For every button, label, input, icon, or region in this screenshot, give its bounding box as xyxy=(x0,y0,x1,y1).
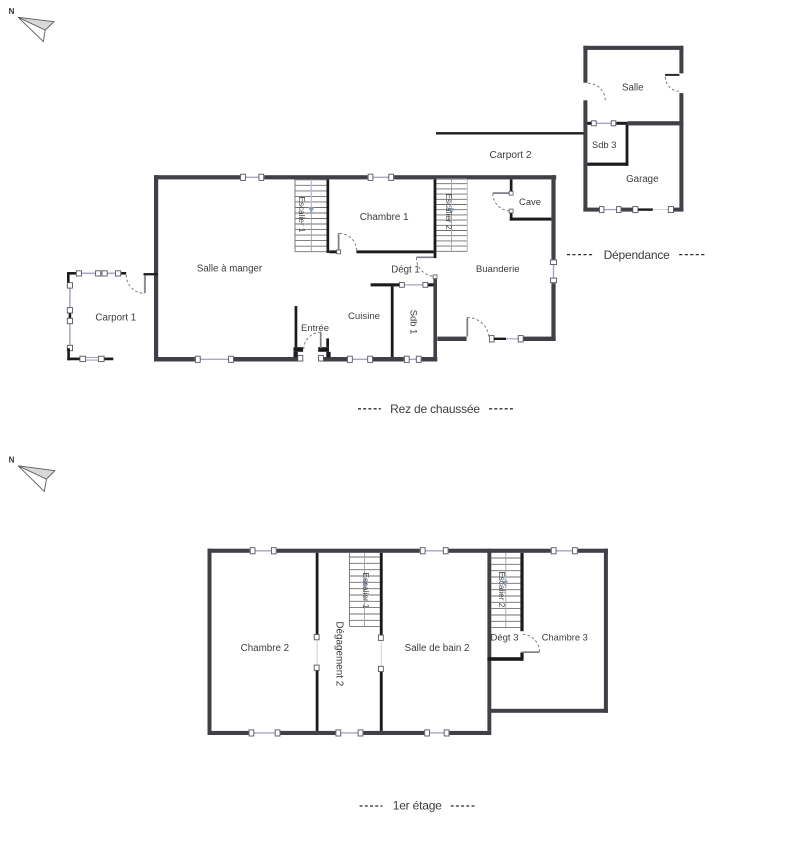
svg-text:Dépendance: Dépendance xyxy=(604,248,671,262)
svg-text:Cave: Cave xyxy=(519,196,541,207)
svg-text:Chambre 3: Chambre 3 xyxy=(542,632,588,642)
svg-text:Dégt 3: Dégt 3 xyxy=(491,633,519,644)
svg-text:Carport 1: Carport 1 xyxy=(95,313,136,324)
svg-text:Escalier 2: Escalier 2 xyxy=(497,571,506,607)
svg-text:Escalier 1: Escalier 1 xyxy=(361,573,370,609)
svg-text:Garage: Garage xyxy=(626,174,658,185)
svg-text:Sdb 1: Sdb 1 xyxy=(409,310,420,335)
svg-text:Salle à manger: Salle à manger xyxy=(197,264,263,275)
svg-text:Sdb 3: Sdb 3 xyxy=(592,139,617,150)
svg-text:Entrée: Entrée xyxy=(301,323,329,334)
svg-text:N: N xyxy=(9,456,15,465)
svg-text:Cuisine: Cuisine xyxy=(348,311,380,322)
svg-text:N: N xyxy=(9,7,15,16)
svg-text:Escalier 2: Escalier 2 xyxy=(444,194,453,230)
svg-text:Carport 2: Carport 2 xyxy=(489,150,531,161)
svg-text:Rez de chaussée: Rez de chaussée xyxy=(390,402,480,416)
svg-text:1er étage: 1er étage xyxy=(393,798,442,812)
svg-text:Chambre 1: Chambre 1 xyxy=(360,212,409,223)
svg-text:Dégagement 2: Dégagement 2 xyxy=(334,621,345,686)
svg-text:Dégt 1: Dégt 1 xyxy=(391,265,420,276)
svg-text:Buanderie: Buanderie xyxy=(476,264,520,275)
svg-text:Salle: Salle xyxy=(622,83,644,94)
svg-text:Salle de bain 2: Salle de bain 2 xyxy=(405,643,470,654)
svg-text:Chambre 2: Chambre 2 xyxy=(241,643,289,654)
svg-text:Escalier 1: Escalier 1 xyxy=(297,197,306,233)
